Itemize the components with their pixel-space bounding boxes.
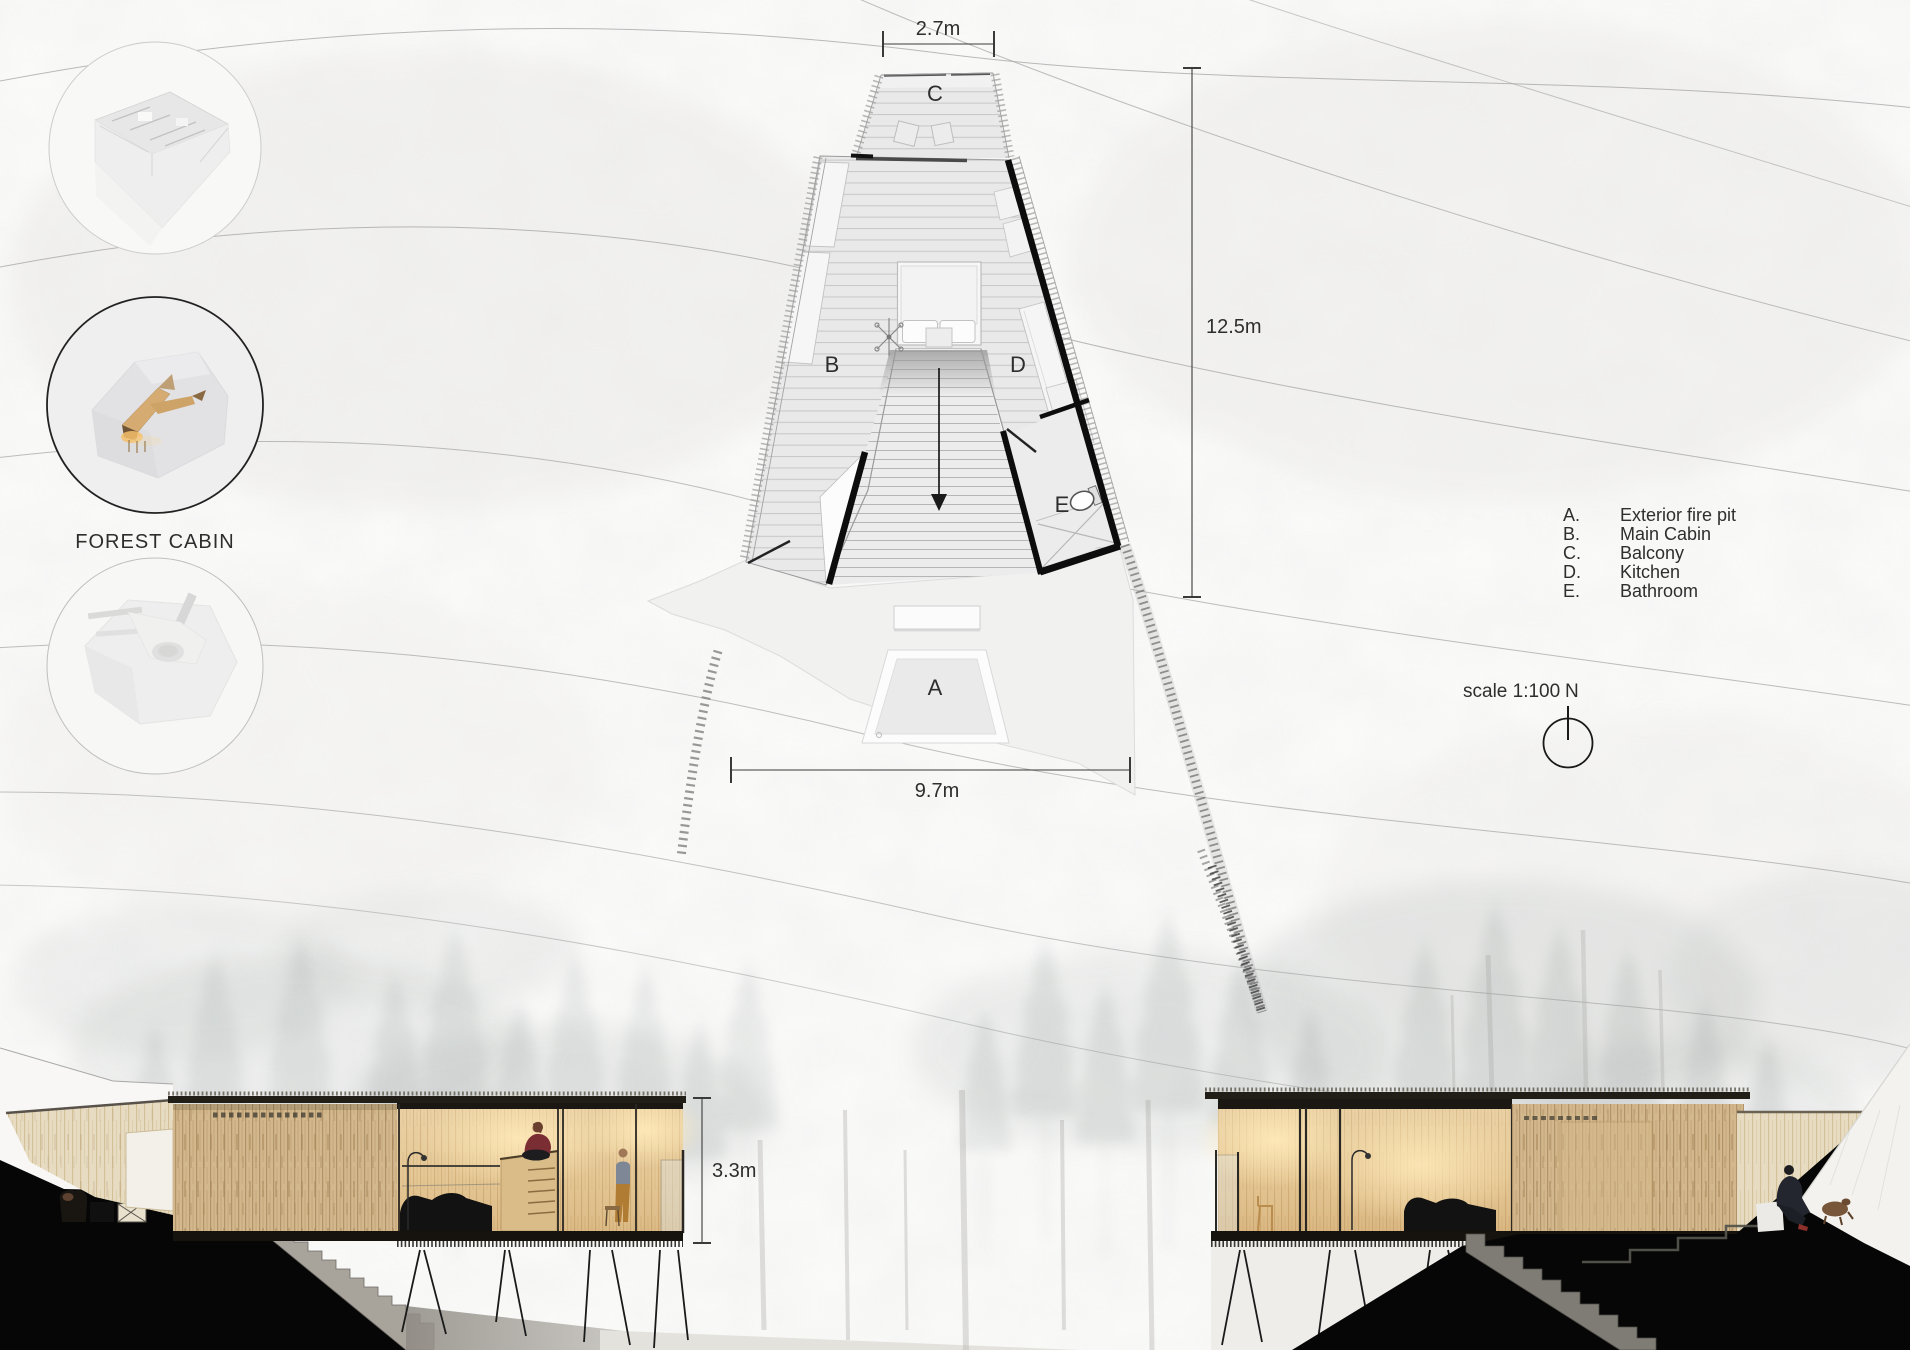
svg-text:2.7m: 2.7m [916, 18, 960, 40]
svg-text:12.5m: 12.5m [1206, 316, 1262, 338]
svg-text:E.: E. [1563, 581, 1580, 601]
svg-text:D: D [1010, 352, 1026, 377]
svg-text:9.7m: 9.7m [915, 780, 959, 802]
svg-text:Exterior fire pit: Exterior fire pit [1620, 505, 1736, 525]
svg-text:FOREST CABIN: FOREST CABIN [75, 531, 234, 553]
svg-text:Bathroom: Bathroom [1620, 581, 1698, 601]
svg-text:E: E [1055, 492, 1070, 517]
svg-text:Kitchen: Kitchen [1620, 562, 1680, 582]
svg-text:A: A [928, 675, 943, 700]
svg-text:scale 1:100: scale 1:100 [1463, 681, 1560, 702]
svg-text:C.: C. [1563, 543, 1581, 563]
svg-text:D.: D. [1563, 562, 1581, 582]
svg-text:Main Cabin: Main Cabin [1620, 524, 1711, 544]
svg-text:Balcony: Balcony [1620, 543, 1684, 563]
svg-text:N: N [1565, 681, 1579, 702]
svg-text:B.: B. [1563, 524, 1580, 544]
svg-text:C: C [927, 81, 943, 106]
svg-text:B: B [825, 352, 840, 377]
svg-text:A.: A. [1563, 505, 1580, 525]
svg-text:3.3m: 3.3m [712, 1160, 756, 1182]
